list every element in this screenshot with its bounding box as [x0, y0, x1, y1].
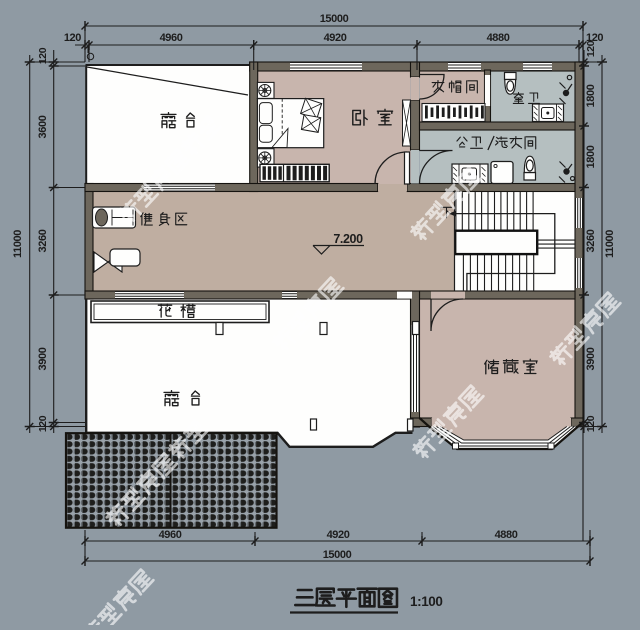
- svg-text:1800: 1800: [585, 145, 597, 168]
- svg-text:4920: 4920: [327, 529, 350, 541]
- svg-text:4960: 4960: [160, 32, 183, 44]
- svg-text:11000: 11000: [604, 230, 616, 258]
- svg-text:15000: 15000: [320, 13, 349, 25]
- svg-text:7.200: 7.200: [333, 232, 363, 246]
- svg-text:120: 120: [37, 415, 49, 432]
- svg-text:4880: 4880: [487, 32, 510, 44]
- svg-text:120: 120: [585, 415, 597, 432]
- svg-text:4880: 4880: [495, 529, 518, 541]
- svg-text:3260: 3260: [585, 229, 597, 252]
- svg-text:15000: 15000: [323, 549, 352, 561]
- svg-text:1:100: 1:100: [410, 594, 443, 609]
- svg-text:11000: 11000: [12, 230, 24, 258]
- svg-text:120: 120: [37, 47, 49, 64]
- svg-text:3900: 3900: [37, 347, 49, 370]
- svg-text:3260: 3260: [37, 229, 49, 252]
- svg-text:120: 120: [585, 40, 597, 57]
- svg-text:3900: 3900: [585, 347, 597, 370]
- svg-text:1800: 1800: [585, 84, 597, 107]
- svg-text:4960: 4960: [159, 529, 182, 541]
- svg-text:3600: 3600: [37, 115, 49, 138]
- svg-text:4920: 4920: [324, 32, 347, 44]
- svg-text:120: 120: [64, 32, 81, 44]
